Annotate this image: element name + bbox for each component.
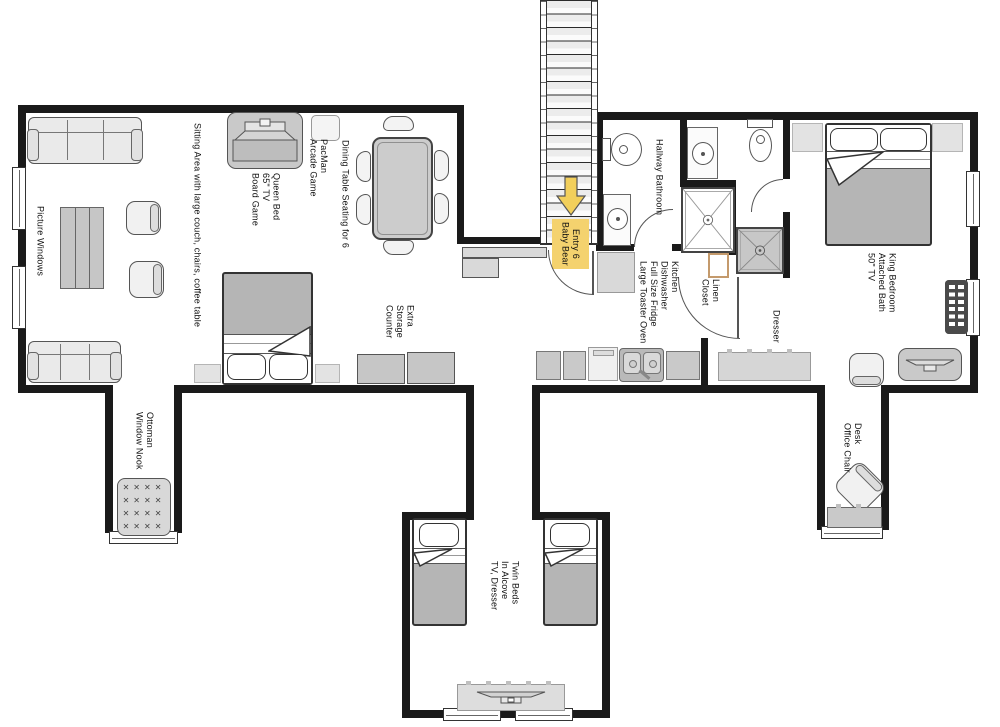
king-bed [825,123,932,246]
window [966,171,980,227]
stair-rail [591,0,598,244]
nightstand [315,364,340,383]
dresser-twin [457,684,565,711]
tv-stand-king [898,348,962,381]
dresser-hallway [718,352,811,381]
nightstand [194,364,221,383]
label-twin-beds: Twin Beds In Alcove TV, Dresser [489,561,521,610]
label-linen-closet: Linen Closet [700,279,721,306]
sofa-cushion-divider [103,120,104,161]
kitchen-cabinet [563,351,586,380]
armchair [126,201,161,235]
wall [532,385,825,393]
wall [680,112,687,186]
twin-bed [543,518,598,626]
wall [783,212,790,278]
blanket-fold [827,151,885,187]
toilet-flush [756,135,765,144]
tv-icon [231,116,299,165]
sofa-large [28,117,142,164]
wall [602,512,610,718]
bed-pillow [830,128,878,151]
storage-counter [407,352,455,384]
entry-arrow-icon [556,176,586,216]
wall [532,385,540,517]
window [12,266,26,329]
blanket-fold [414,548,454,568]
wall [402,512,410,718]
shower [681,187,735,253]
sofa-cushion-divider [89,344,90,380]
wall [817,390,825,530]
label-picture-windows: Picture Windows [35,206,46,276]
toilet-bowl [749,129,772,162]
wall [881,390,889,530]
label-desk: Desk Office Chair [842,423,863,473]
toilet-tank [747,119,773,128]
wall [466,385,474,517]
nightstand [792,123,823,152]
door-leaf [592,251,594,295]
queen-bed [222,272,313,385]
tv-console-queen [227,112,303,169]
door-swing [548,250,594,295]
window-ac-unit [945,280,968,334]
dining-chair [434,193,449,224]
sink [607,208,628,230]
kitchen-cabinet [666,351,700,380]
blanket-fold [545,548,585,568]
bed-pillow [269,354,308,380]
bathroom-vanity [687,127,718,179]
kitchen-sink [619,348,664,382]
fridge [588,347,618,381]
wall [783,112,790,179]
bathroom-vanity [603,194,631,246]
dining-chair [434,150,449,181]
nightstand [932,123,963,152]
window [966,279,980,336]
label-king-bedroom: King Bedroom Attached Bath 50" TV [866,253,898,312]
wall [174,385,182,533]
sofa-small [28,341,121,383]
sink-basin [643,352,661,374]
sink [692,142,714,165]
toilet-flush [619,145,628,154]
entry-counter [462,258,499,278]
sofa-arm [27,352,39,381]
bed-pillow [227,354,266,380]
desk [827,507,882,528]
label-hallway-bathroom: Hallway Bathroom [654,139,665,215]
floor-plan: Entry 6 Baby Bear [0,0,1000,727]
arcade-game [311,115,340,141]
label-pacman: PacMan Arcade Game [308,139,329,197]
armchair [849,353,884,387]
wall [457,237,544,244]
sofa-cushion-divider [60,344,61,380]
wall [18,105,26,393]
sofa-arm [27,129,39,161]
wall [457,105,464,244]
window [12,167,26,230]
stair-rail [540,0,547,244]
bed-pillow [550,523,590,547]
ottoman: ✕✕✕✕ ✕✕✕✕ ✕✕✕✕ ✕✕✕✕ [117,478,171,536]
sofa-arm [110,352,122,381]
dining-chair [383,240,414,255]
kitchen-cabinet [536,351,561,380]
wall [701,338,708,388]
shower-icon [683,189,733,251]
label-dresser: Dresser [771,310,782,343]
shower [736,227,784,274]
fridge-handle [593,350,614,356]
door-leaf [737,277,739,338]
sofa-arm [131,129,143,161]
wall [174,385,474,393]
tv-icon [902,352,958,377]
wall [402,710,610,718]
toilet-tank [602,138,611,161]
door-swing [751,179,783,212]
label-kitchen: Kitchen Dishwasher Full Size Fridge Larg… [638,261,680,343]
dining-chair [383,116,414,131]
wall [970,112,978,393]
label-extra-storage: Extra Storage Counter [384,305,416,338]
wall [680,180,736,187]
sofa-back-line [38,132,132,133]
sofa-cushion-divider [67,120,68,161]
dining-table [372,137,433,240]
wall [105,385,113,533]
armchair [129,261,164,298]
bed-pillow [880,128,927,151]
label-dining-table: Dining Table Seating for 6 [340,140,351,248]
tv-icon [461,688,561,707]
dining-chair [356,194,371,225]
coffee-table [60,207,104,289]
label-ottoman-nook: Ottoman Window Nook [134,412,155,470]
sofa-back-line [38,354,111,355]
linen-closet [708,253,729,278]
entry-counter [462,247,547,258]
entry-closet [597,252,635,293]
shower-icon [738,229,782,272]
dining-chair [356,151,371,182]
label-sitting-area: Sitting Area with large couch, chairs, c… [192,123,203,327]
storage-counter [357,354,405,384]
wall [881,385,978,393]
twin-bed [412,518,467,626]
bed-pillow [419,523,459,547]
toilet [602,132,643,168]
wall [18,385,107,393]
toilet [747,119,774,164]
label-queen-room: Queen Bed 65" TV Board Game [250,173,282,226]
ottoman-tufts: ✕✕✕✕ ✕✕✕✕ ✕✕✕✕ ✕✕✕✕ [120,481,168,533]
